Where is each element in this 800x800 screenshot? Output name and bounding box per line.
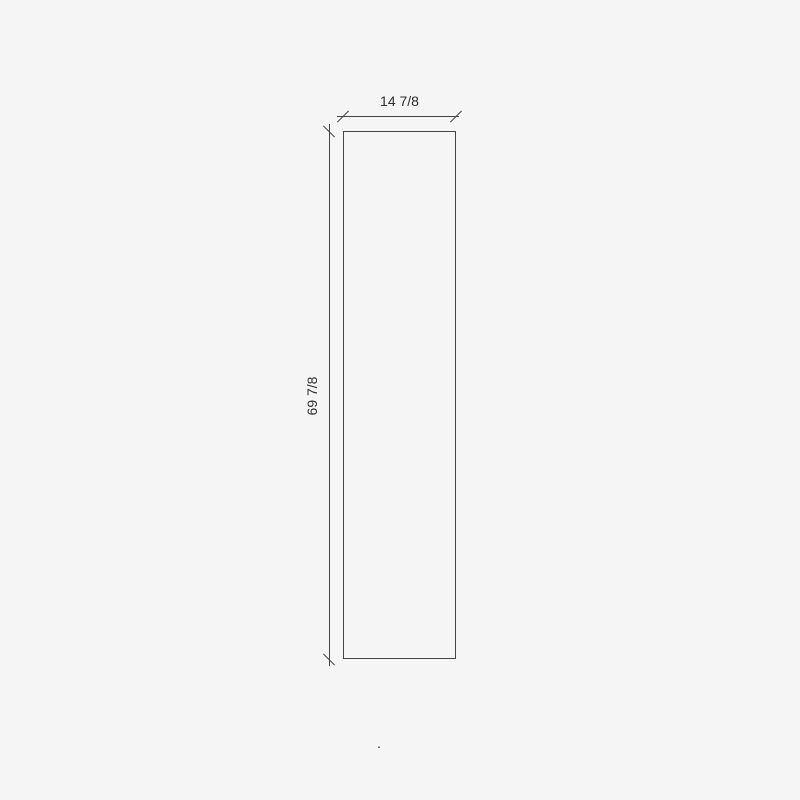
panel-outline: [343, 131, 456, 659]
drawing-canvas: 14 7/8 69 7/8 .: [0, 0, 800, 800]
height-dimension-line: [329, 124, 330, 666]
width-dimension-label: 14 7/8: [343, 93, 456, 109]
width-dimension-line: [337, 116, 459, 117]
stray-period-mark: .: [377, 735, 387, 752]
height-dimension-label: 69 7/8: [304, 356, 320, 436]
